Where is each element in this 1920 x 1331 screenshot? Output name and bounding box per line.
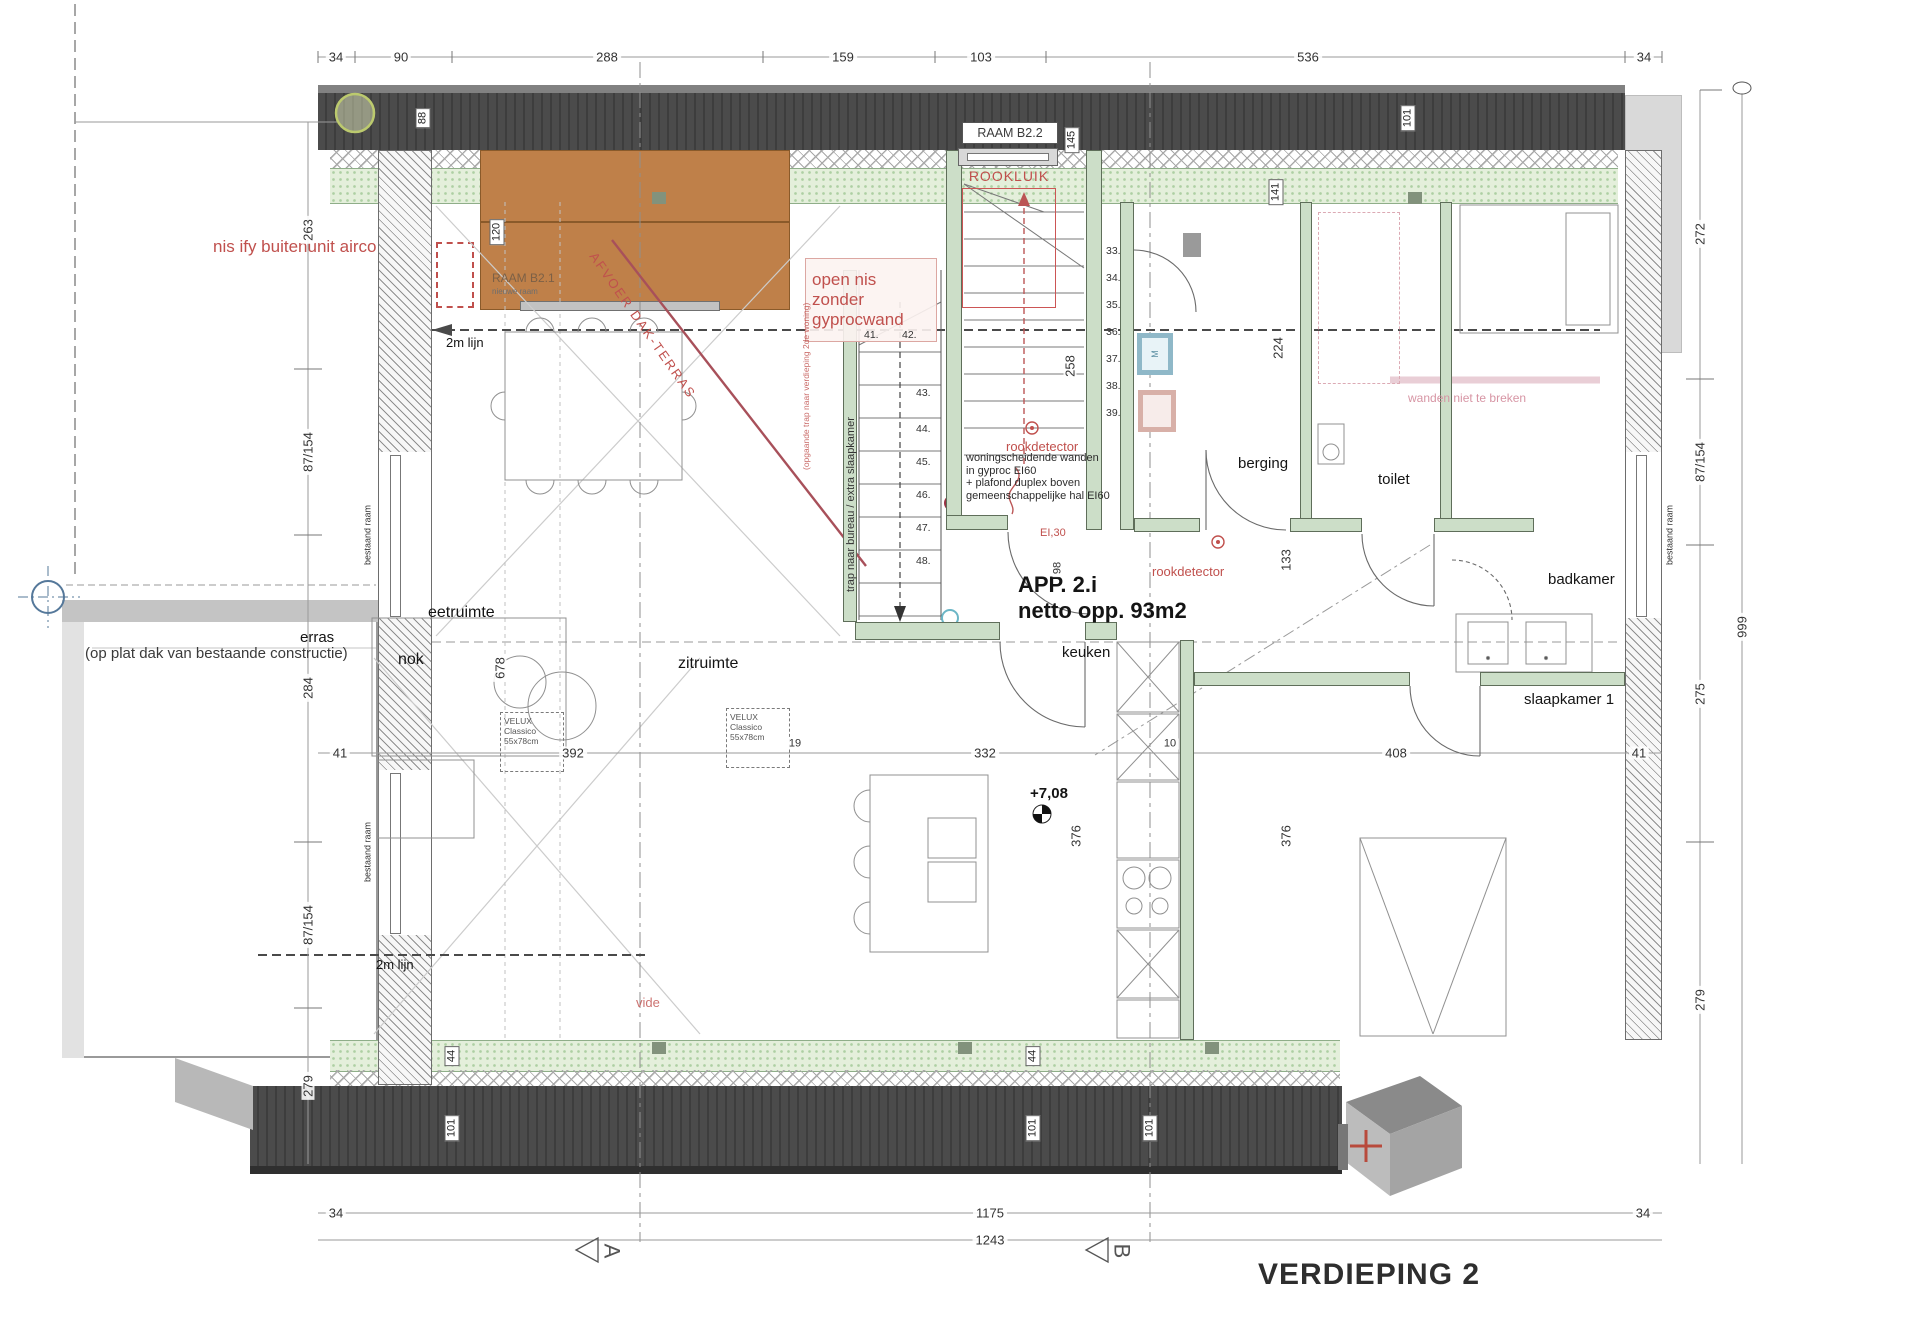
stair-num: 36. [1106,327,1121,338]
stair-num: 47. [916,523,931,534]
dim-right-999: 999 [1736,613,1749,641]
dim-left-284: 284 [302,674,315,702]
dim-wall-101c: 101 [1143,1115,1158,1141]
level-symbol [1033,805,1051,823]
section-triangles [576,1238,1108,1262]
dim-top-103: 103 [967,51,995,64]
dim-top-90: 90 [391,51,411,64]
window-left-lower [390,773,401,934]
joist-row-bottom [330,1070,1340,1086]
rookdetector-2: rookdetector [1152,565,1224,578]
roof-band-bottom [250,1086,1342,1166]
dim-wall-44a: 44 [445,1046,460,1066]
wall-stair-left [946,150,962,530]
velux-size: 55x78cm [504,736,539,746]
dim-bot-34a: 34 [326,1207,346,1220]
velux-label: VELUX Classico [504,716,536,736]
stair-num: 35. [1106,300,1121,311]
ei60-line4: gemeenschappelijke hal EI60 [966,490,1110,503]
apartment-area: netto opp. 93m2 [1018,600,1187,622]
raam-b21-label: RAAM B2.1 [492,272,555,284]
dim-wall-101t: 101 [1401,105,1416,131]
roof-band-top-edge [318,85,1625,93]
dim-mid-19: 19 [786,739,804,750]
dim-left-263: 263 [302,216,315,244]
stair-num: 45. [916,457,931,468]
velux-box-2: VELUX Classico 55x78cm [726,708,790,768]
wand-breken-note: wanden niet te breken [1408,392,1526,404]
wall-slaapkamer-top-b [1480,672,1625,686]
velux-size: 55x78cm [730,732,765,742]
trap-bureau-label: trap naar bureau / extra slaapkamer [846,417,857,592]
skylight-blue-label: M [1150,350,1160,358]
column [1408,192,1422,204]
dim-678: 678 [494,654,507,682]
floor-plan-sheet: M VELUX Classico 55x78cm VELUX Classico … [0,0,1920,1331]
wall-toilet-badkamer [1440,202,1452,532]
window-left-upper [390,455,401,617]
wall-slaapkamer-top-a [1194,672,1410,686]
open-nis-line2: gyprocwand [812,310,930,330]
dim-bot-1243: 1243 [973,1234,1008,1247]
column [652,192,666,204]
dim-224: 224 [1272,334,1285,362]
bestaand-raam-left-1: bestaand raam [364,502,373,568]
dim-wall-88: 88 [416,108,431,128]
wall-keuken-hal-b [1085,622,1117,640]
sheet-title-text: VERDIEPING 2 [1258,1258,1480,1291]
terrace-wedge [175,1058,253,1130]
terrace-left-strip [62,622,84,1058]
room-vide: vide [636,996,660,1009]
ei60-line1: woningscheidende wanden [966,452,1110,465]
stair-num: 33. [1106,246,1121,257]
room-berging: berging [1238,456,1288,471]
trap-op-label: (opgaande trap naar verdieping 2de wonin… [802,303,811,470]
dim-mid-392: 392 [559,747,587,760]
room-eetruimte: eetruimte [428,605,495,621]
rookluik-text: ROOKLUIK [969,168,1049,184]
dim-right-87154: 87/154 [1694,439,1707,485]
dim-left-87154a: 87/154 [302,429,315,475]
section-marker-b: B [1114,1238,1129,1264]
wall-keuken-hal-a [855,622,1000,640]
bestaand-raam-right: bestaand raam [1666,502,1675,568]
velux-label: VELUX Classico [730,712,762,732]
wall-keuken-slaapkamer [1180,640,1194,1040]
room-nok: nok [398,652,424,668]
wall-berging-toilet [1300,202,1312,530]
dim-left-279: 279 [302,1072,315,1100]
dim-top-34b: 34 [1634,51,1654,64]
velux-box-1: VELUX Classico 55x78cm [500,712,564,772]
wall-hal-berging [1120,202,1134,530]
stair-num: 42. [902,330,917,341]
dim-right-279: 279 [1694,986,1707,1014]
annotation-airco: nis ify buitenunit airco [213,238,376,255]
wall-stair-bottom [946,515,1008,530]
dim-top-34a: 34 [326,51,346,64]
stair-num: 41. [864,330,879,341]
raam-b22-window [958,148,1058,166]
raam-b21-mid-line [480,221,790,223]
dim-98: 98 [1053,559,1064,577]
dim-top-536: 536 [1294,51,1322,64]
section-letter-a: A [598,1244,624,1259]
stair-num: 34. [1106,273,1121,284]
stair-num: 43. [916,388,931,399]
stair-num: 38. [1106,381,1121,392]
dim-wall-141: 141 [1269,179,1284,205]
dim-left-87154b: 87/154 [302,902,315,948]
dim-258: 258 [1064,352,1077,380]
terras-label: erras [300,630,334,645]
ei60-note: woningscheidende wanden in gyproc EI60 +… [966,452,1110,502]
dim-mid-408: 408 [1382,747,1410,760]
shaft-pink-box [1318,212,1400,384]
terrace-area [62,600,378,1058]
terrace-roof-edge [62,600,378,622]
section-letter-b: B [1108,1244,1134,1259]
level-label: +7,08 [1030,786,1068,801]
stair-num: 37. [1106,354,1121,365]
tweem-bottom: 2m lijn [376,958,414,971]
dim-mid-41b: 41 [1629,747,1649,760]
wall-hal-top-b [1290,518,1362,532]
stair-num: 44. [916,424,931,435]
dim-376b: 376 [1280,822,1293,850]
dim-mid-332: 332 [971,747,999,760]
room-slaapkamer: slaapkamer 1 [1524,692,1614,707]
berging-wall-block [1183,233,1201,257]
insulation-strip-bottom [330,1040,1340,1072]
tweem-top: 2m lijn [446,336,484,349]
dim-wall-145: 145 [1065,127,1080,153]
sheet-title: VERDIEPING 2 [1258,1258,1480,1292]
window-right [1636,455,1647,617]
dim-top-159: 159 [829,51,857,64]
rookluik-outline [962,188,1056,308]
column [958,1042,972,1054]
ei30-label: EI,30 [1040,528,1066,539]
rookluik-label: ROOKLUIK [964,168,1054,186]
section-marker-a: A [604,1238,619,1264]
dim-mid-10: 10 [1161,739,1179,750]
wall-hal-top-c [1434,518,1534,532]
ei60-line3: + plafond duplex boven [966,477,1110,490]
dim-bot-34b: 34 [1633,1207,1653,1220]
stair-num: 39. [1106,408,1121,419]
airco-niche-box [436,242,474,308]
stair-num: 48. [916,556,931,567]
dim-mid-41a: 41 [330,747,350,760]
skylight-pink [1138,390,1176,432]
dim-wall-101b: 101 [1026,1115,1041,1141]
dim-wall-101a: 101 [445,1115,460,1141]
dim-133: 133 [1280,546,1293,574]
stair-num: 46. [916,490,931,501]
terras-note: (op plat dak van bestaande constructie) [85,646,348,661]
raam-b21-sub: nieuwe raam [492,288,538,296]
open-nis-line1: open nis zonder [812,270,930,310]
raam-b21-orange-zone [480,150,790,310]
column [1205,1042,1219,1054]
apartment-name: APP. 2.i [1018,574,1097,596]
window-gap-left-lower [379,770,431,935]
bestaand-raam-left-2: bestaand raam [364,819,373,885]
wall-hal-top-a [1134,518,1200,532]
dim-wall-120: 120 [490,219,505,245]
dim-bot-1175: 1175 [973,1207,1007,1220]
dim-top-288: 288 [593,51,621,64]
ei60-line2: in gyproc EI60 [966,465,1110,478]
room-zitruimte: zitruimte [678,656,738,672]
dim-right-272: 272 [1694,220,1707,248]
raam-b22-label-box: RAAM B2.2 [962,122,1058,144]
house-3d-icon [1338,1076,1462,1196]
skylight-blue: M [1137,333,1173,375]
dim-right-275: 275 [1694,680,1707,708]
room-badkamer: badkamer [1548,572,1615,587]
roof-band-bottom-edge [250,1166,1342,1174]
column [652,1042,666,1054]
window-gap-left-upper [379,452,431,618]
dim-376a: 376 [1070,822,1083,850]
room-keuken: keuken [1062,645,1110,660]
raam-b22-label: RAAM B2.2 [977,126,1042,140]
room-toilet: toilet [1378,472,1410,487]
stair-left-walkline [894,302,906,622]
grid-markers [18,94,374,628]
dim-wall-44b: 44 [1026,1046,1041,1066]
